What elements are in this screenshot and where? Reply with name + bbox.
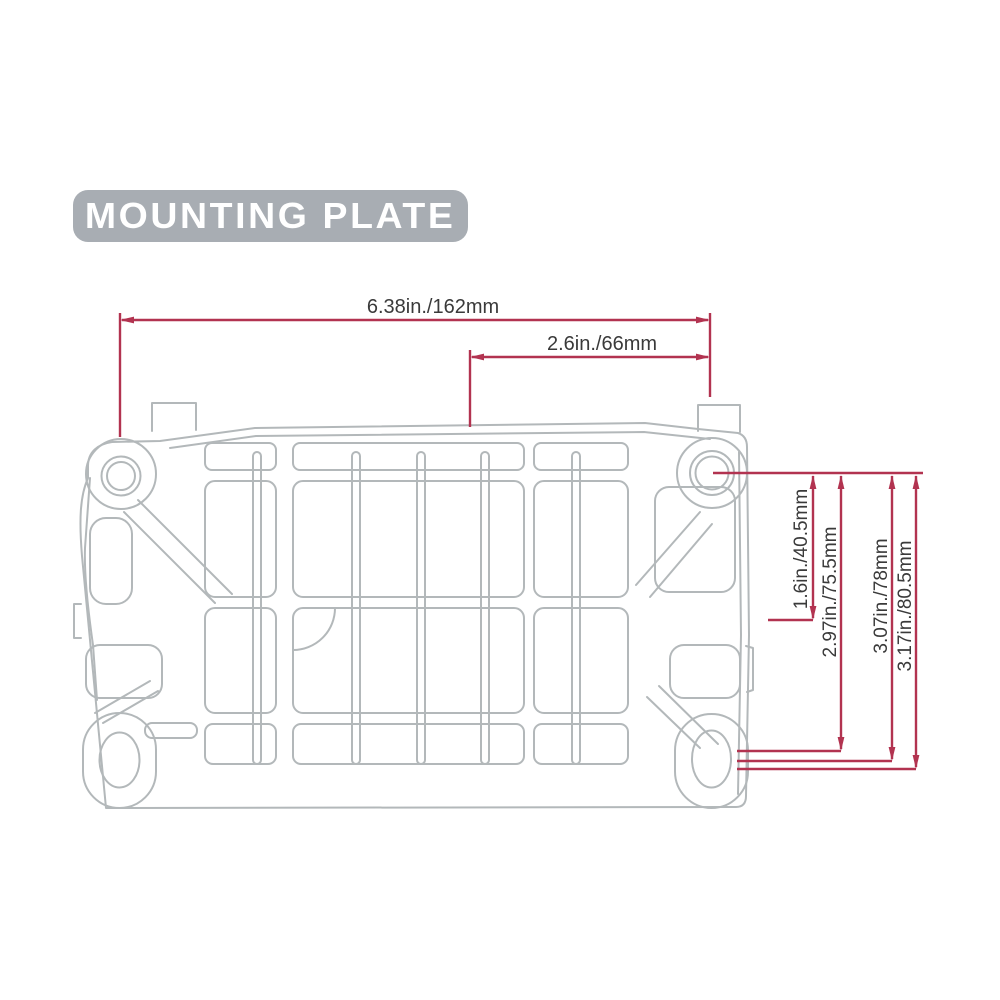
label-hole-span-2: 3.07in./78mm [871, 538, 892, 653]
screenshot-canvas: MOUNTING PLATE [0, 0, 1000, 1000]
right-corner-braces [636, 487, 740, 748]
label-offset-width: 2.6in./66mm [547, 333, 657, 355]
plate-inner-right-edge [738, 452, 741, 794]
top-tab-right [698, 405, 740, 432]
plate-inner-top-edge [170, 432, 710, 448]
top-tab-left [152, 403, 196, 431]
left-edge-notch [74, 604, 81, 638]
label-hole-to-slot-top: 1.6in./40.5mm [791, 489, 812, 609]
label-overall-width: 6.38in./162mm [367, 296, 499, 318]
dimension-offset-width [470, 350, 708, 427]
dimension-overall-width [120, 313, 710, 437]
left-corner-braces [86, 500, 232, 738]
label-hole-span-3: 3.17in./80.5mm [895, 541, 916, 672]
mounting-hole-top-left [86, 439, 156, 509]
mounting-plate-diagram: 6.38in./162mm 2.6in./66mm 1.6in./40.5mm … [0, 0, 1000, 1000]
grid-arc-detail [293, 608, 335, 650]
label-hole-span-1: 2.97in./75.5mm [820, 527, 841, 658]
